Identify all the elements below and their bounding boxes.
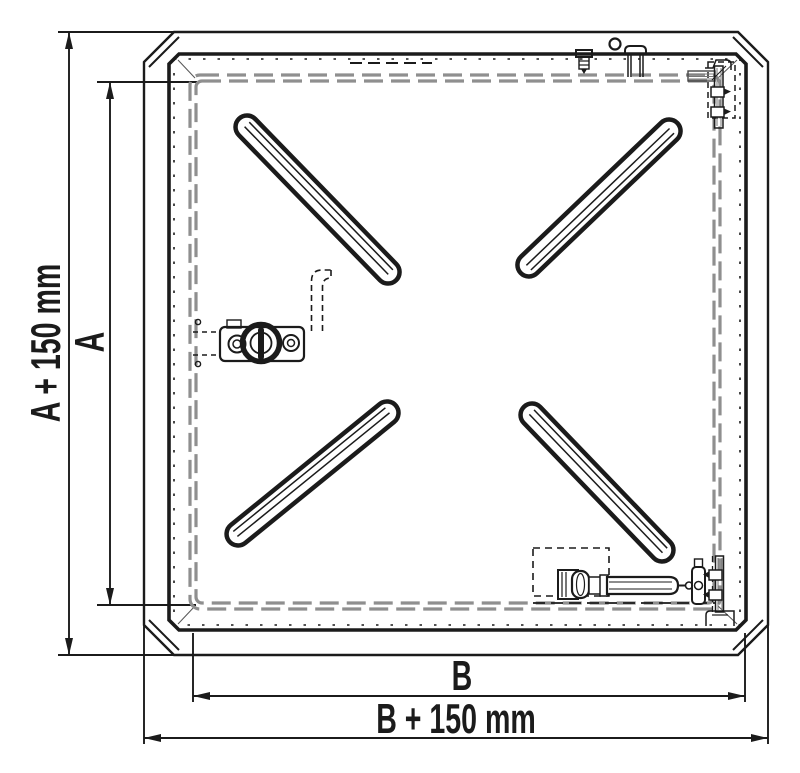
lock-handle-hidden [312, 270, 332, 331]
top-edge-details [576, 39, 646, 78]
stiffener-bar-top-right [513, 115, 686, 281]
hinge-pocket [706, 611, 734, 626]
stiffener-bar-bottom-left [222, 397, 403, 550]
hinge-bottom-right [703, 556, 734, 626]
dimension-label-b: B [452, 651, 473, 699]
strut-pivot-barrel [572, 571, 589, 598]
dimension-label-a-plus-150: A + 150 mm [21, 264, 69, 422]
stiffener-bar-bottom-right [516, 399, 678, 567]
drawing-canvas: A + 150 mm A B B + 150 mm [0, 0, 800, 773]
lock-assembly [193, 270, 331, 367]
gas-strut-assembly [533, 548, 734, 626]
dimension-label-a: A [65, 332, 113, 353]
hinge-strap [625, 46, 646, 77]
strut-cylinder [607, 577, 678, 594]
dimension-label-b-plus-150: B + 150 mm [376, 694, 536, 742]
hinge-bolt [711, 107, 731, 117]
lock-key-slot [258, 327, 264, 360]
lift-hole [610, 39, 621, 50]
hinge-bolt [711, 87, 731, 97]
hatch-technical-drawing: A + 150 mm A B B + 150 mm [0, 0, 800, 773]
stiffener-bar-top-left [231, 111, 405, 289]
hinge-top-right [688, 60, 735, 128]
